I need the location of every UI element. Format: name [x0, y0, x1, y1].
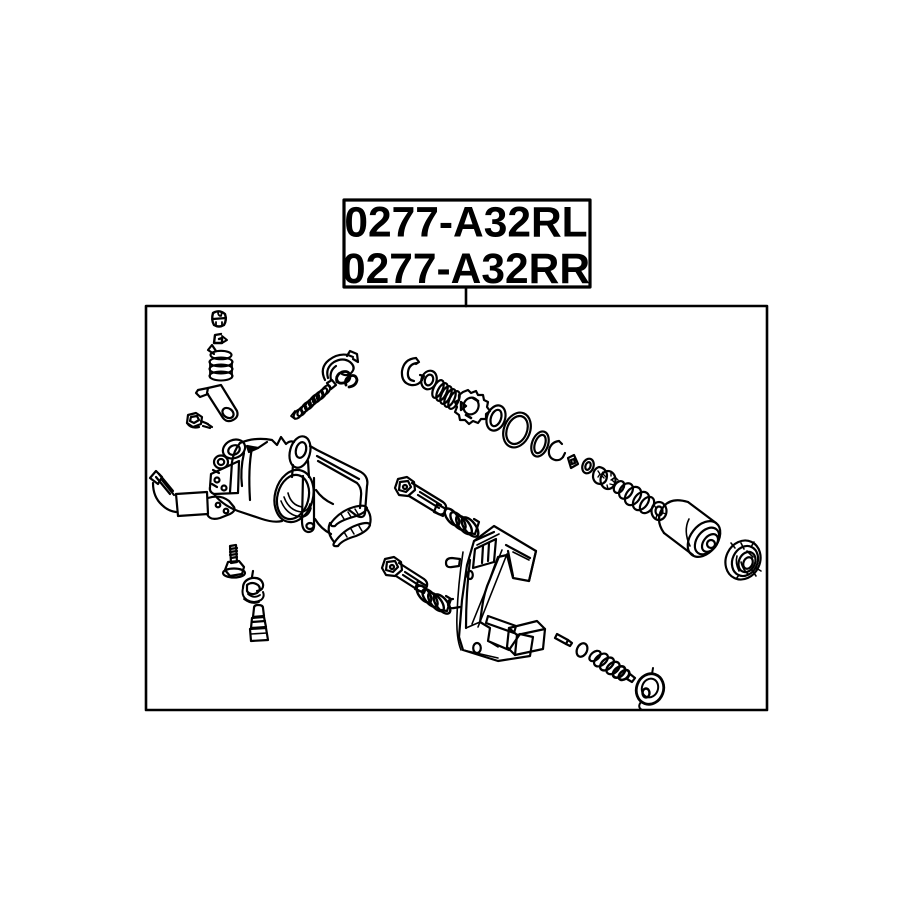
svg-text:0277-A32RL: 0277-A32RL: [344, 200, 587, 247]
